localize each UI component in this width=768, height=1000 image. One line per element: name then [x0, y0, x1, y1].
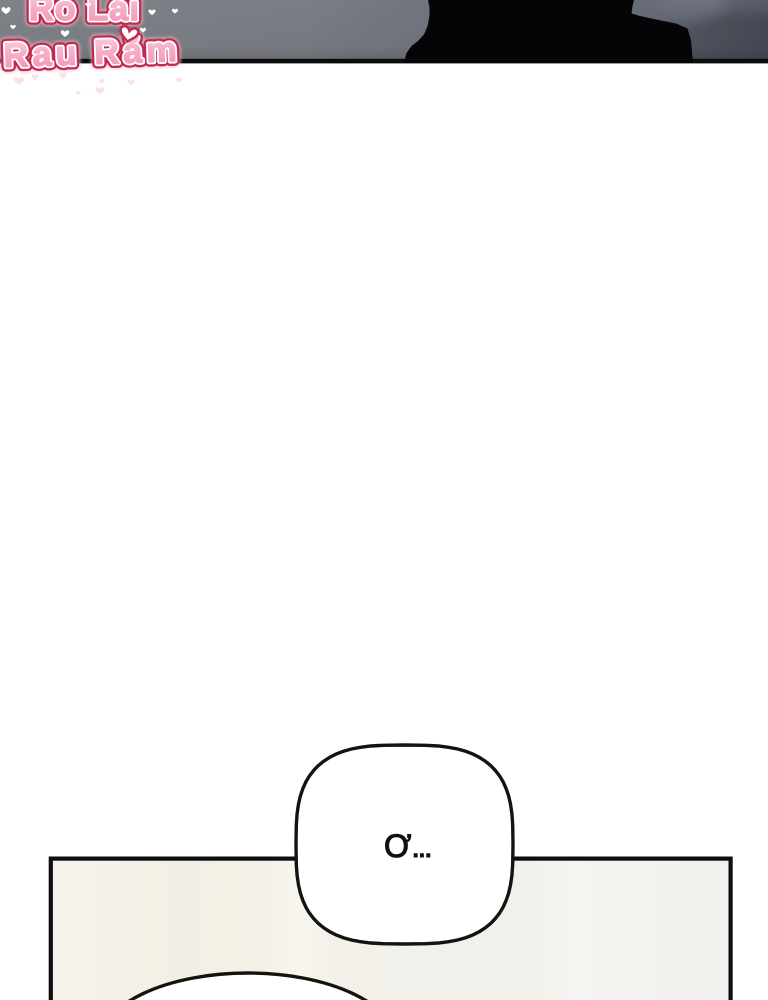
svg-text:Ơ...: Ơ... — [384, 828, 430, 864]
svg-text:Ro Lái: Ro Lái — [29, 0, 139, 28]
